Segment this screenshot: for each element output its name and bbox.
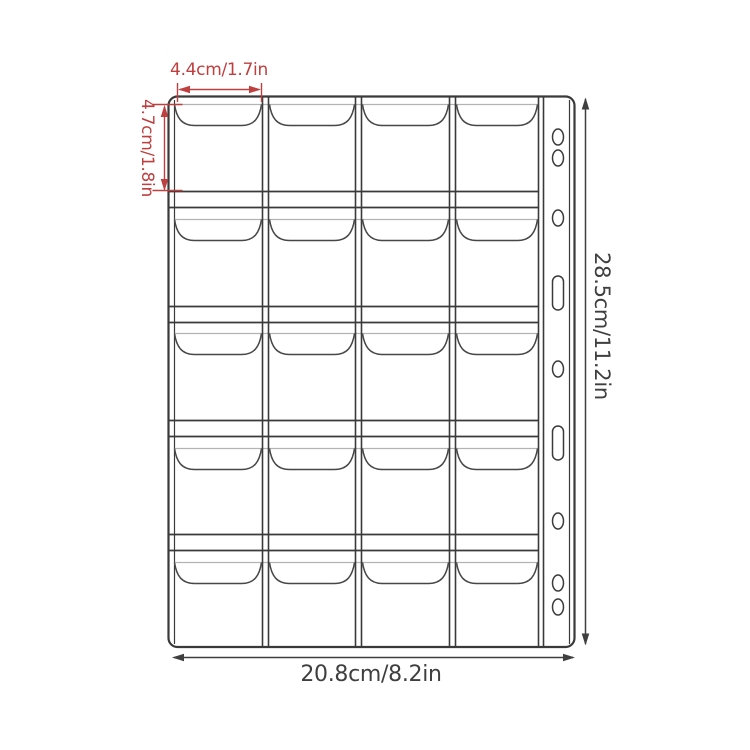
arrowhead — [582, 634, 590, 646]
sheet-width-label: 20.8cm/8.2in — [261, 662, 481, 687]
pocket-height-label: 4.7cm/1.8in — [134, 83, 156, 213]
binder-hole-round — [553, 575, 564, 591]
arrowhead — [172, 654, 184, 662]
pocket-sheet-outline — [169, 97, 575, 648]
binder-hole-slot — [553, 276, 564, 310]
product-dimension-diagram: 4.4cm/1.7in 4.7cm/1.8in 28.5cm/11.2in 20… — [0, 0, 750, 750]
pocket-width-label: 4.4cm/1.7in — [149, 61, 289, 81]
arrowhead — [249, 86, 261, 94]
binder-hole-round — [553, 129, 564, 145]
diagram-canvas — [0, 0, 750, 750]
arrowhead — [161, 105, 169, 117]
arrowhead — [582, 98, 590, 110]
binder-hole-round — [553, 513, 564, 529]
binder-hole-slot — [553, 426, 564, 460]
binder-hole-round — [553, 210, 564, 226]
arrowhead — [178, 86, 190, 94]
sheet-height-label: 28.5cm/11.2in — [588, 241, 614, 411]
arrowhead — [161, 179, 169, 191]
arrowhead — [563, 654, 575, 662]
binder-hole-round — [553, 361, 564, 377]
binder-hole-round — [553, 150, 564, 166]
binder-hole-round — [553, 599, 564, 615]
